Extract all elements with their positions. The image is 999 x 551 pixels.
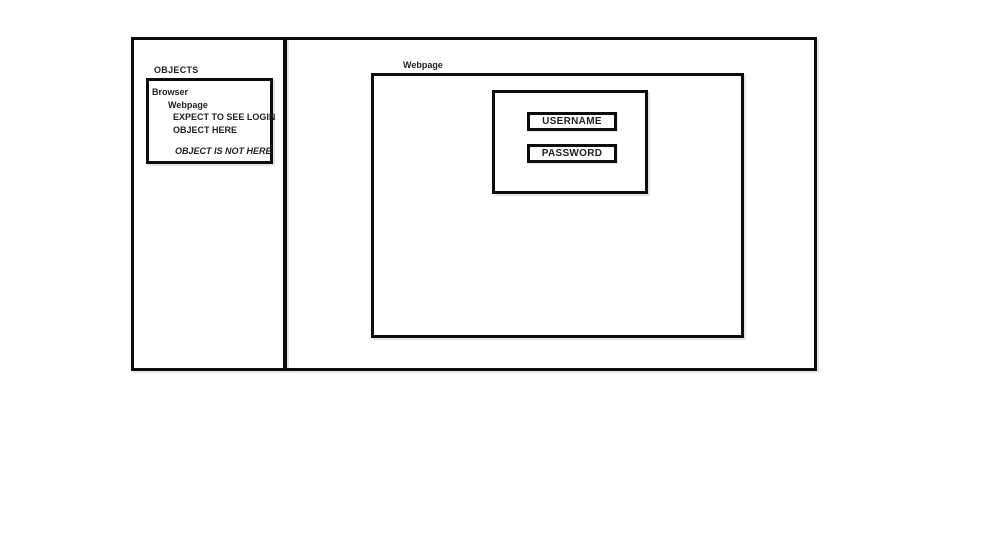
tree-item-webpage: Webpage (168, 99, 270, 112)
objects-tree-box: Browser Webpage EXPECT TO SEE LOGIN OBJE… (146, 78, 273, 164)
login-form-box (492, 90, 648, 194)
tree-item-browser: Browser (152, 86, 270, 99)
tree-note-expect-login-line2: OBJECT HERE (173, 124, 270, 137)
panel-divider (283, 37, 287, 371)
username-field[interactable]: USERNAME (527, 112, 617, 131)
tree-status-object-not-here: OBJECT IS NOT HERE (175, 145, 270, 158)
webpage-label: Webpage (403, 60, 443, 70)
wireframe-canvas: OBJECTS Browser Webpage EXPECT TO SEE LO… (0, 0, 999, 551)
password-field[interactable]: PASSWORD (527, 144, 617, 163)
objects-panel-title: OBJECTS (154, 65, 199, 75)
tree-note-expect-login-line1: EXPECT TO SEE LOGIN (173, 111, 270, 124)
